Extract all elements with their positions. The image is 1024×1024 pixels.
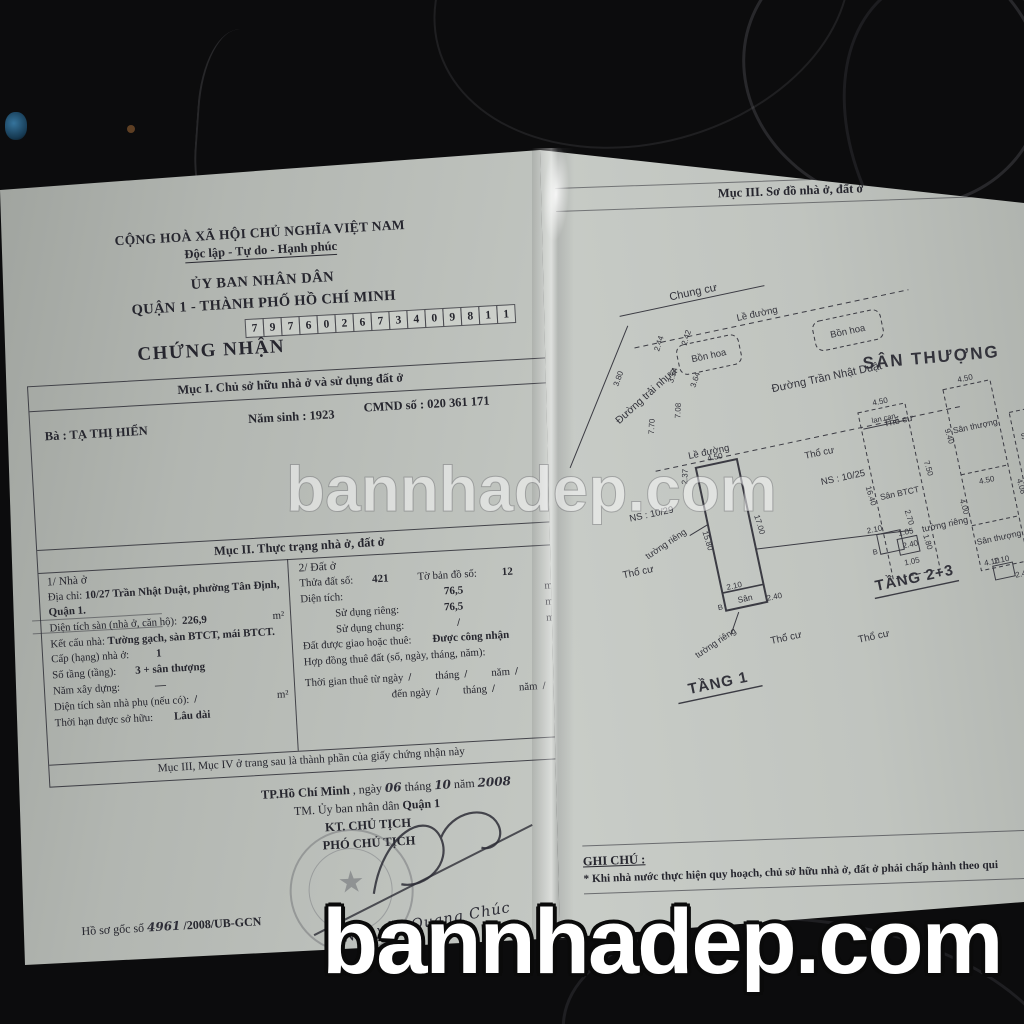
- dimension-label: 7.08: [673, 402, 683, 419]
- serial-digit: 0: [424, 308, 444, 328]
- diagram-label: B: [872, 547, 879, 557]
- serial-digit: 3: [388, 310, 408, 330]
- dimension-label: 4.08: [1015, 478, 1024, 496]
- dimension-label: 4.00: [958, 498, 971, 516]
- diagram-label: Sân thượng: [976, 528, 1023, 547]
- dossier-number-line: Hồ sơ gốc số 4961 /2008/UB-GCN: [81, 914, 262, 939]
- serial-digit: 1: [496, 304, 516, 324]
- diagram-label: tường riêng: [644, 527, 689, 562]
- diagram-label: Thổ cư: [769, 629, 803, 647]
- serial-digit: 7: [245, 318, 265, 338]
- dimension-label: 2.44: [652, 334, 666, 352]
- orange-speck: [127, 125, 135, 133]
- dimension-label: 3.80: [612, 369, 626, 387]
- dimension-label: 2.40: [1014, 567, 1024, 579]
- diagram-label: Bồn hoa: [829, 323, 867, 341]
- roof-terrace-title: SÂN THƯỢNG: [862, 342, 1001, 373]
- dimension-label: 1.05: [903, 555, 921, 567]
- diagram-label: Thổ cư: [804, 445, 836, 462]
- house-column: 1/ Nhà ở Địa chỉ: 10/27 Trần Nhật Duật, …: [38, 559, 298, 765]
- diagram-label: Sân: [1020, 428, 1024, 441]
- diagram-label: NS : 10/25: [820, 468, 866, 488]
- diagram-label: Thổ cư: [621, 563, 655, 581]
- owner-id-number: CMND số : 020 361 171: [363, 394, 490, 416]
- blue-speck: [5, 112, 27, 140]
- dimension-label: 4.50: [957, 372, 975, 384]
- serial-digit: 8: [460, 306, 480, 326]
- serial-digit: 0: [316, 314, 336, 334]
- owner-birth-year: Năm sinh : 1923: [248, 407, 335, 427]
- diagram-label: Lề đường: [736, 304, 779, 323]
- diagram-label: Thổ cư: [857, 627, 891, 645]
- right-page-content: Mục III. Sơ đồ nhà ở, đất ở: [555, 162, 1024, 958]
- owner-name: Bà : TẠ THỊ HIỂN: [44, 424, 148, 445]
- serial-digit: 9: [442, 307, 462, 327]
- floor-label-tang1: TẦNG 1: [687, 669, 750, 698]
- diagram-label: B: [717, 602, 724, 612]
- watermark-center: bannhadep.com: [286, 452, 777, 526]
- notes-section: GHI CHÚ : * Khi nhà nước thực hiện quy h…: [582, 829, 1024, 894]
- serial-digit: 2: [334, 313, 354, 333]
- dimension-label: 1.80: [921, 533, 934, 551]
- dimension-label: 7.50: [922, 459, 935, 477]
- dimension-label: 2.10: [726, 580, 744, 592]
- dimension-label: 4.50: [871, 395, 889, 407]
- dimension-label: 3.64: [689, 370, 703, 388]
- serial-digit: 1: [478, 305, 498, 325]
- dimension-label: 2.70: [903, 509, 916, 527]
- dimension-label: 4.50: [978, 474, 996, 486]
- diagram-label: Sân thượng: [952, 416, 999, 435]
- section2-columns: 1/ Nhà ở Địa chỉ: 10/27 Trần Nhật Duật, …: [38, 544, 572, 765]
- diagram-label: Sân: [737, 592, 754, 605]
- dimension-label: 2.10: [993, 554, 1011, 566]
- handwritten-dossier-number: 4961: [147, 919, 181, 935]
- dimension-label: 7.70: [647, 418, 657, 435]
- diagram-label: tường riêng: [921, 514, 969, 534]
- dimension-label: 15.80: [700, 530, 715, 552]
- left-page-content: CỘNG HOÀ XÃ HỘI CHỦ NGHĨA VIỆT NAM Độc l…: [13, 175, 592, 1004]
- diagram-label: Bồn hoa: [690, 347, 728, 365]
- fold-crease-highlight: [541, 145, 572, 242]
- land-column: 2/ Đất ở Thửa đất số: 421 Tờ bản đồ số: …: [288, 544, 572, 751]
- dimension-label: 16.40: [864, 485, 879, 507]
- photo-stage: CỘNG HOÀ XÃ HỘI CHỦ NGHĨA VIỆT NAM Độc l…: [0, 0, 1024, 1024]
- watermark-bottom: bannhadep.com: [322, 890, 1001, 995]
- serial-digit: 7: [370, 311, 390, 331]
- diagram-label: tường riêng: [693, 626, 738, 661]
- serial-digit: 7: [281, 316, 301, 336]
- certificate-body-box: Mục I. Chủ sở hữu nhà ở và sử dụng đất ở…: [27, 357, 575, 788]
- serial-digit: 6: [352, 312, 372, 332]
- serial-digit: 9: [263, 317, 283, 337]
- dimension-label: 2.40: [902, 538, 920, 550]
- dimension-label: 2.42: [680, 328, 694, 346]
- diagram-label: Sân BTCT: [879, 484, 920, 502]
- dimension-label: 2.40: [766, 591, 784, 603]
- serial-digit: 4: [406, 309, 426, 329]
- serial-digit: 6: [298, 315, 318, 335]
- certificate-title: CHỨNG NHẬN: [81, 333, 342, 369]
